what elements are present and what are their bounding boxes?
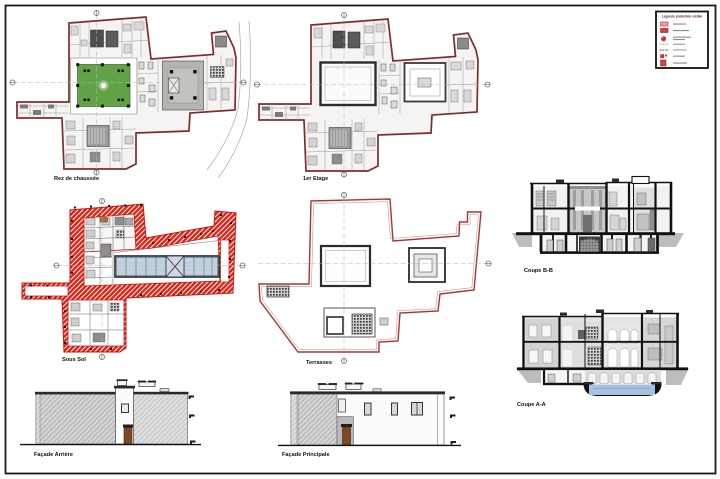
svg-text:Façade Principale: Façade Principale [282, 452, 330, 458]
svg-text:Sous Sol: Sous Sol [62, 357, 86, 363]
svg-text:Façade Arrière: Façade Arrière [34, 452, 73, 458]
svg-text:Coupe A-A: Coupe A-A [517, 402, 546, 408]
svg-text:Terrasses: Terrasses [306, 360, 332, 366]
svg-text:Rez de chaussée: Rez de chaussée [54, 176, 99, 182]
svg-text:1er Etage: 1er Etage [303, 176, 328, 182]
svg-text:Coupe B-B: Coupe B-B [524, 268, 553, 274]
svg-text:Légende protection visible: Légende protection visible [662, 15, 703, 19]
